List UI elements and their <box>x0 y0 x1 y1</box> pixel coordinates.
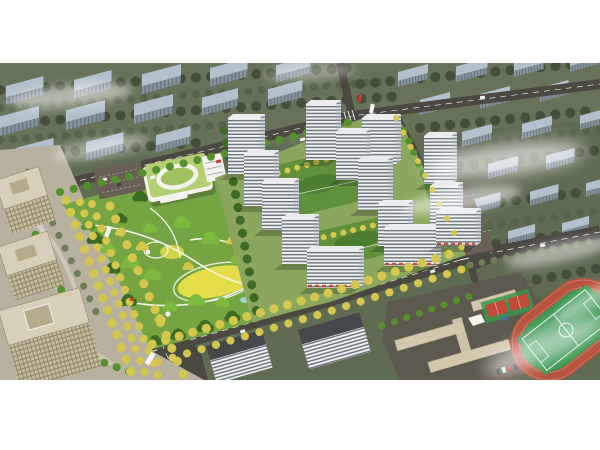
rendering-strip <box>0 50 600 397</box>
aerial-rendering-figure: Aerial rendering of a residential master… <box>0 0 600 450</box>
aerial-rendering-image <box>0 0 600 450</box>
